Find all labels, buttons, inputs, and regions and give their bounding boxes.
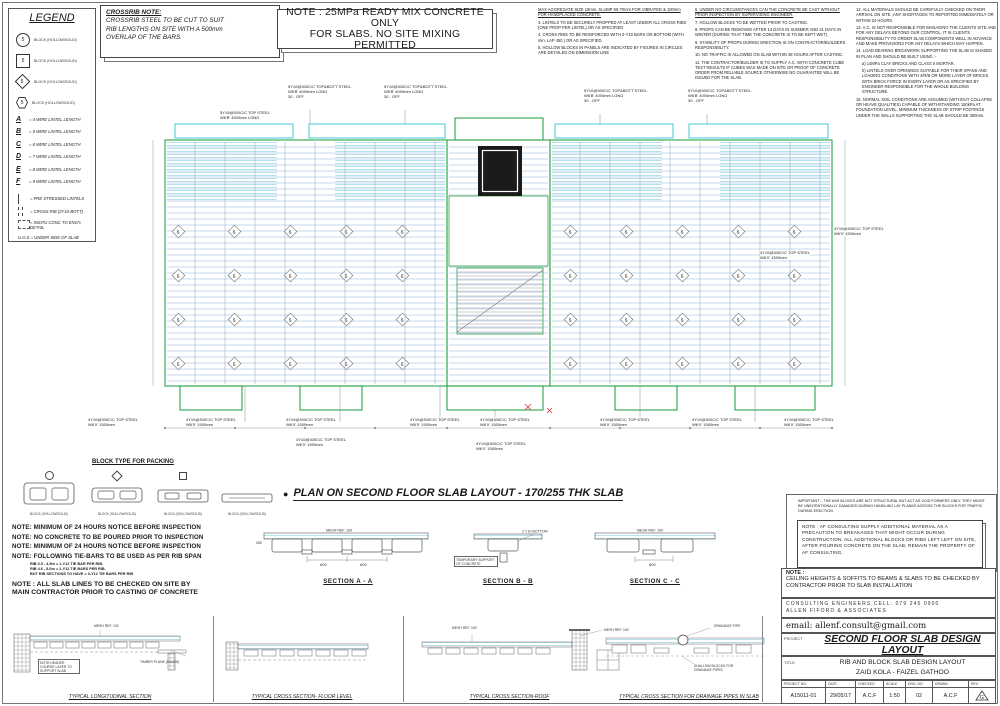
legend-lintel-row: B = 5 WIRE LINTEL LENGTH xyxy=(9,126,95,139)
email-box: email: allenf.consult@gmail.com xyxy=(781,618,996,633)
section-c-title: SECTION C - C xyxy=(585,578,725,585)
concrete-note: NOTE : 25MPa READY MIX CONCRETE ONLY FOR… xyxy=(277,9,493,49)
timber-plank-label: TIMBER PLANK (50x228) xyxy=(140,660,179,664)
drawn-by: A.C.F xyxy=(933,688,969,703)
cross-rib-icon xyxy=(18,207,30,216)
svg-text:2 Y10 BOTTOM: 2 Y10 BOTTOM xyxy=(522,530,548,534)
steel-label: 5Y10@300C/C TOP&BOTT STEELW6'B' 4000mm L… xyxy=(288,84,351,99)
steel-label: 4Y10@300C/C TOP STEELW6'X' 1500mm xyxy=(88,417,138,427)
af-consulting-note: NOTE : AF CONSULTING SUPPLY ADDITIONAL M… xyxy=(797,520,983,568)
legend-line-row: U.O.S = UNDER SIDE OF SLAB xyxy=(9,231,95,244)
title-row: TITLE RIB AND BLOCK SLAB DESIGN LAYOUT Z… xyxy=(781,656,996,680)
site-notes: NOTE: MINIMUM OF 24 HOURS NOTICE BEFORE … xyxy=(12,524,250,597)
block-icon xyxy=(23,480,75,506)
svg-text:G: G xyxy=(980,695,984,701)
drawing-sheet: LEGEND 5 BLOCK (HOLLOW/SOLID) 5 BLOCK (H… xyxy=(0,0,1000,706)
packing-block-type: BLOCK (HOLLOW/SOLID) xyxy=(88,471,146,516)
slab-lines-note: NOTE : ALL SLAB LINES TO BE CHECKED ON S… xyxy=(12,581,250,597)
detail-longitudinal: MESH REF. 100 NOTE:HEADER COURSE LAYER T… xyxy=(10,626,210,702)
legend-block-label: BLOCK (HOLLOW/SOLID) xyxy=(32,101,75,105)
legend-line-row: = CROSS RIB (2Y10-BOTT) xyxy=(9,205,95,218)
steel-label: 4Y10@300C/C TOP STEELW6'X' 1500mm xyxy=(480,417,530,427)
svg-text:600: 600 xyxy=(649,562,656,567)
date: 29/05/17 xyxy=(826,688,856,703)
square-block-marker-icon: 5 xyxy=(16,54,30,68)
svg-text:MESH REF. 100: MESH REF. 100 xyxy=(637,529,663,533)
legend-title: LEGEND xyxy=(9,12,95,24)
floor-plan-drawing: 6 xyxy=(95,78,905,460)
hexagon-block-marker-icon: 5 xyxy=(16,97,28,109)
steel-label: 4Y10@300C/C TOP STEELW6'X' 1500mm xyxy=(760,250,810,260)
tie-bar-notes: RIB 0.0 - 4.5m = 1-Y12 TIE BAR PER RIB. … xyxy=(30,562,250,577)
crossrib-note: CROSSRIB NOTE: CROSSRIB STEEL TO BE CUT … xyxy=(100,5,280,58)
steel-label: 4Y10@300C/C TOP STEELW6'X' 1500mm xyxy=(834,226,884,236)
circle-block-marker-icon: 5 xyxy=(16,33,30,47)
steel-label: 5Y10@300C/C TOP&BOTT STEELW6'B' 4000mm L… xyxy=(384,84,447,99)
titleblock-header-row: PROJECT NO. DATE CHECKED SCALE DRG. NO. … xyxy=(782,681,995,688)
mesh-label: MESH REF. 100 xyxy=(94,624,119,628)
circle-marker-icon xyxy=(45,471,54,480)
legend-block-label: BLOCK (HOLLOW/SOLID) xyxy=(34,80,77,84)
legend-block-row: 5 BLOCK (HOLLOW/SOLID) xyxy=(9,50,95,71)
section-b-drawing: 2 Y10 BOTTOM TEMPORARY SUPPORT OF CONCRE… xyxy=(452,522,564,586)
legend-lintel-row: A = 4 WIRE LINTEL LENGTH xyxy=(9,113,95,126)
steel-label: 4Y10@300C/C TOP STEELW6'X' 1500mm xyxy=(410,417,460,427)
detail-drainage-title: TYPICAL CROSS SECTION FOR DRAINAGE PIPES… xyxy=(598,694,780,700)
scale: 1:50 xyxy=(884,688,906,703)
square-marker-icon xyxy=(179,472,187,480)
svg-text:600: 600 xyxy=(320,562,327,567)
legend-panel: LEGEND 5 BLOCK (HOLLOW/SOLID) 5 BLOCK (H… xyxy=(8,8,96,242)
section-a-sketch: 600 600 MESH REF. 100 255 xyxy=(256,528,440,568)
detail-floor-level: TYPICAL CROSS SECTION- FLOOR LEVEL xyxy=(222,632,382,702)
block-icon xyxy=(221,480,273,506)
divider xyxy=(403,616,404,702)
steel-label: 4Y10@300C/C TOP STEELW6'X' 1500mm xyxy=(186,417,236,427)
packing-block-type: BLOCK (HOLLOW/SOLID) xyxy=(154,471,212,516)
detail-drainage-sketch xyxy=(598,626,780,674)
revision-triangle-icon: G xyxy=(975,690,989,701)
legend-block-row: 5 BLOCK (HOLLOW/SOLID) xyxy=(9,29,95,50)
legend-line-row: = PRE STRESSED LINTELS xyxy=(9,192,95,205)
bullet-icon: ● xyxy=(283,489,288,499)
temporary-support-label: TEMPORARY SUPPORT OF CONCRETE xyxy=(454,556,498,567)
shallow-blocks-label: SHALLOW BLOCKS FOR DRAINAGE PIPES xyxy=(694,664,742,672)
steel-label: 4Y10@300C/C TOP STEELW6'X' 1500mm xyxy=(692,417,742,427)
packing-block-type: BLOCK (HOLLOW/SOLID) xyxy=(20,471,78,516)
ceiling-note: NOTE : CEILING HEIGHTS & SOFFITS TO BEAM… xyxy=(781,568,996,598)
header-course-label: NOTE:HEADER COURSE LAYER TO SUPPORT SLAB xyxy=(38,659,80,674)
steel-label: 5Y10@300C/C TOP&BOTT STEELW6'B' 4000mm L… xyxy=(688,88,751,103)
plan-title: ● PLAN ON SECOND FLOOR SLAB LAYOUT - 170… xyxy=(283,487,623,501)
legend-block-row: 5 BLOCK (HOLLOW/SOLID) xyxy=(9,71,95,92)
section-b-title: SECTION B - B xyxy=(452,578,564,585)
legend-lintel-row: C = 6 WIRE LINTEL LENGTH xyxy=(9,138,95,151)
steel-label: 4Y10@300C/C TOP STEELW6'X' 1500mm xyxy=(784,417,834,427)
section-a-title: SECTION A - A xyxy=(256,578,440,585)
section-a-drawing: 600 600 MESH REF. 100 255 SECTION A - A xyxy=(256,522,440,586)
engineers-name: ALLEN FIFORD & ASSOCIATES xyxy=(786,608,991,615)
insitu-conc-icon xyxy=(18,220,30,229)
project-no: A15011-01 xyxy=(782,688,826,703)
block-icon xyxy=(157,480,209,506)
drawing-title: RIB AND BLOCK SLAB DESIGN LAYOUT ZAID KO… xyxy=(810,657,995,679)
svg-text:MESH REF. 100: MESH REF. 100 xyxy=(326,529,352,533)
steel-label: 4Y10@300C/C TOP STEELW6'X' 1500mm xyxy=(476,441,526,451)
steel-label: 4Y10@300C/C TOP STEELW6'X' 1500mm xyxy=(600,417,650,427)
revision-cell: G xyxy=(969,688,995,703)
divider xyxy=(213,616,214,702)
email-text: email: allenf.consult@gmail.com xyxy=(786,621,926,631)
legend-block-label: BLOCK (HOLLOW/SOLID) xyxy=(34,38,77,42)
legend-block-row: 5 BLOCK (HOLLOW/SOLID) xyxy=(9,92,95,113)
detail-floor-level-title: TYPICAL CROSS SECTION- FLOOR LEVEL xyxy=(222,694,382,700)
crossrib-note-title: CROSSRIB NOTE: xyxy=(106,9,274,17)
project-name: SECOND FLOOR SLAB DESIGN LAYOUT xyxy=(810,634,995,656)
detail-drainage: MESH REF. 100 DRAINAGE PIPE SHALLOW BLOC… xyxy=(598,626,780,702)
important-note: IMPORTANT :- THE ASH BLOCKS ARE NOT STRU… xyxy=(798,499,986,513)
engineers-box: CONSULTING ENGINEERS CELL: 079 245 0900 … xyxy=(781,598,996,618)
section-c-sketch: 600 MESH REF. 100 xyxy=(585,528,725,568)
titleblock-value-row: A15011-01 29/05/17 A.C.F 1:50 02 A.C.F G xyxy=(782,688,995,703)
checked-by: A.C.F xyxy=(856,688,884,703)
svg-text:600: 600 xyxy=(360,562,367,567)
steel-label: 4Y10@300C/C TOP STEELW6'X' 1500mm xyxy=(296,437,346,447)
mesh-label: MESH REF. 100 xyxy=(452,626,477,630)
project-row: PROJECT SECOND FLOOR SLAB DESIGN LAYOUT xyxy=(781,633,996,656)
block-packing-panel: BLOCK TYPE FOR PACKING BLOCK (HOLLOW/SOL… xyxy=(12,458,280,524)
svg-text:255: 255 xyxy=(256,541,262,545)
notes-column-2: 6. UNDER NO CIRCUMSTANCES CAN THE CONCRE… xyxy=(695,7,847,83)
engineers-cell: CONSULTING ENGINEERS CELL: 079 245 0900 xyxy=(786,601,991,608)
packing-block-type: BLOCK (HOLLOW/SOLID) xyxy=(218,471,276,516)
legend-lintel-row: D = 7 WIRE LINTEL LENGTH xyxy=(9,151,95,164)
titleblock-table: PROJECT NO. DATE CHECKED SCALE DRG. NO. … xyxy=(781,680,996,704)
mesh-label: MESH REF. 100 xyxy=(604,628,629,632)
section-c-drawing: 600 MESH REF. 100 SECTION C - C xyxy=(585,522,725,586)
legend-line-row: = INSITU CONC TO ENG's DETAIL xyxy=(9,218,95,231)
legend-block-label: BLOCK (HOLLOW/SOLID) xyxy=(34,59,77,63)
steel-label: 5Y10@300C/C TOP STEELW6'B' 4500mm LONG xyxy=(220,110,270,120)
block-icon xyxy=(91,480,143,506)
detail-floor-level-sketch xyxy=(222,632,382,674)
drainage-pipe-label: DRAINAGE PIPE xyxy=(714,624,740,628)
block-packing-title: BLOCK TYPE FOR PACKING xyxy=(92,459,174,465)
right-notes-panel: IMPORTANT :- THE ASH BLOCKS ARE NOT STRU… xyxy=(786,494,997,572)
drawing-no: 02 xyxy=(906,688,933,703)
notes-column-1: MAX AGGREGATE SIZE 19mm, SLUMP 50-70mm F… xyxy=(538,7,688,58)
legend-lintel-row: E = 8 WIRE LINTEL LENGTH xyxy=(9,163,95,176)
steel-label: 4Y10@300C/C TOP STEELW6'X' 1500mm xyxy=(286,417,336,427)
detail-longitudinal-title: TYPICAL LONGITUDINAL SECTION xyxy=(10,694,210,700)
diamond-block-marker-icon: 5 xyxy=(15,74,31,90)
steel-label: 5Y10@300C/C TOP&BOTT STEELW6'B' 4000mm L… xyxy=(584,88,647,103)
legend-lintel-row: F = 9 WIRE LINTEL LENGTH xyxy=(9,176,95,189)
prestressed-lintel-icon xyxy=(18,194,30,204)
